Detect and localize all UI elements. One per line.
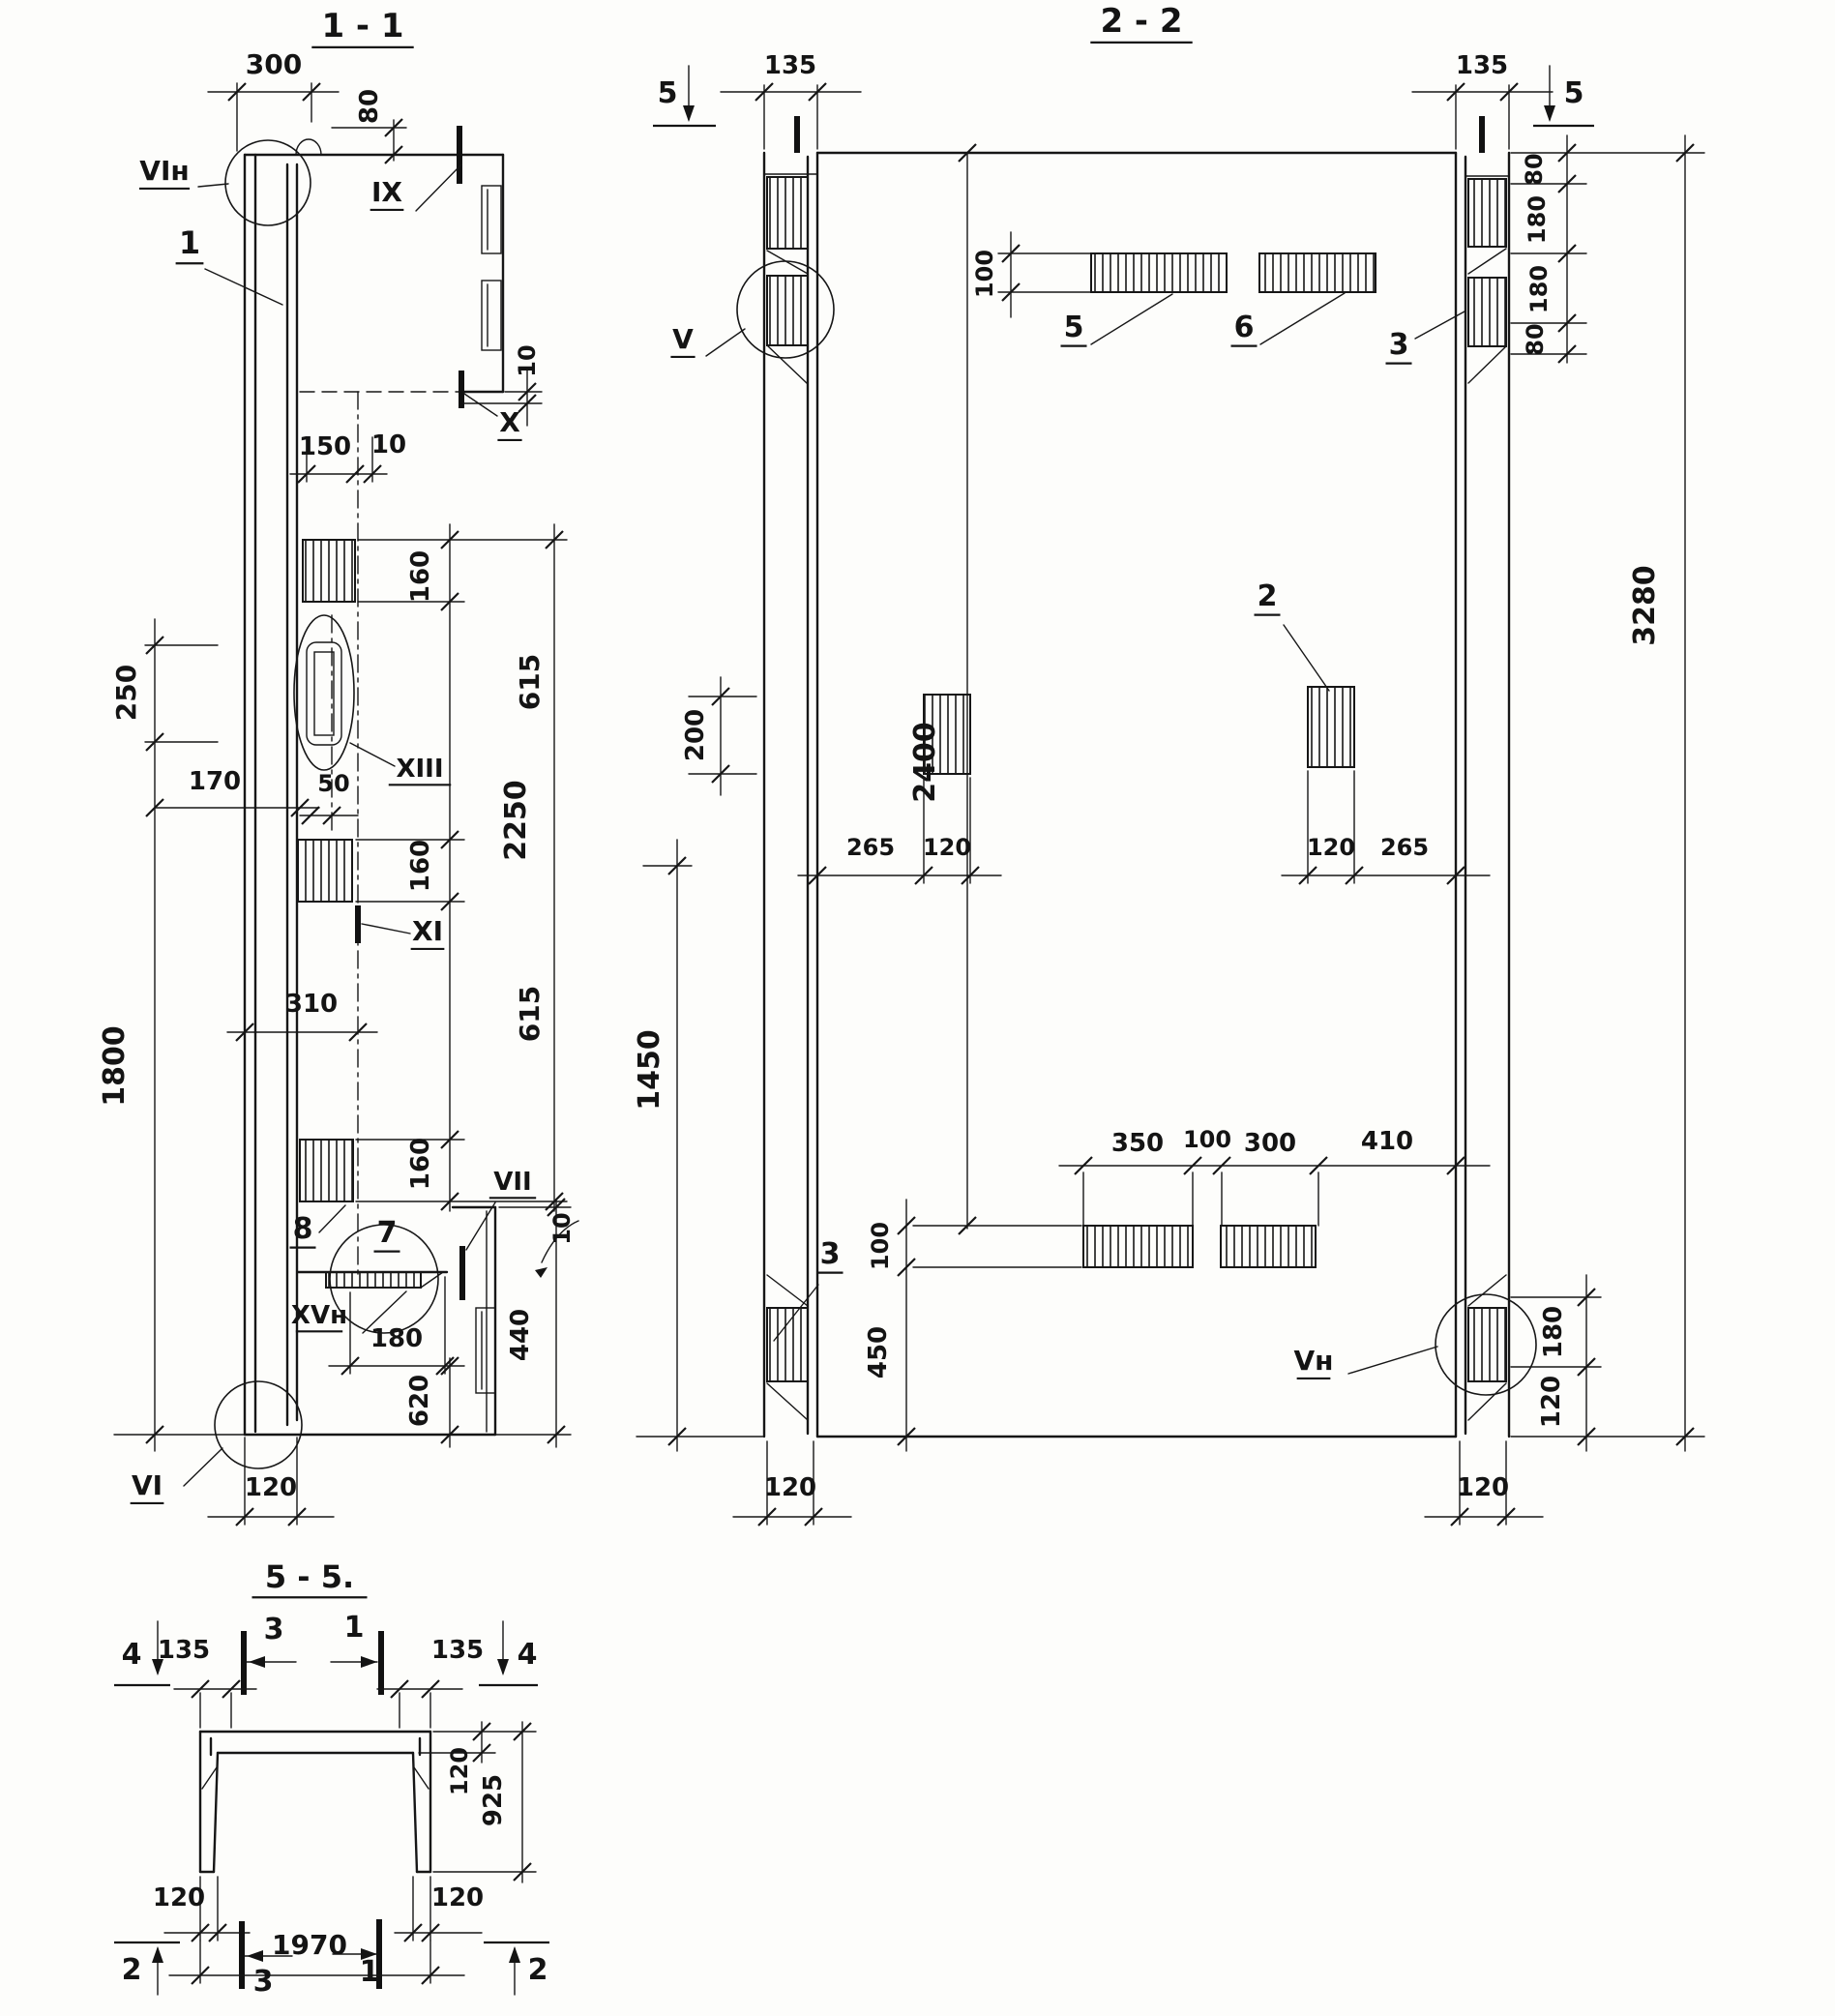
anchor-plate <box>482 281 501 350</box>
dim-180-e: 180 <box>1525 265 1553 313</box>
dim-170: 170 <box>189 767 241 796</box>
dim-120-b: 120 <box>923 834 971 861</box>
title-1-1: 1 - 1 <box>321 7 403 45</box>
dim-3280: 3280 <box>1628 565 1662 646</box>
dim-10-a: 10 <box>371 430 406 460</box>
marker-xiii: XIII <box>396 755 443 784</box>
stirrup-bar <box>1468 278 1506 346</box>
dim-265-b: 265 <box>1380 834 1429 861</box>
label-layer: 1 - 130080VIнIX115010X10160615XIII225025… <box>98 2 1662 1999</box>
dim-2250: 2250 <box>499 780 533 861</box>
slot-opening <box>307 642 341 745</box>
label-7: 7 <box>377 1216 398 1250</box>
dim-265-a: 265 <box>846 834 895 861</box>
dim-180: 180 <box>370 1324 423 1353</box>
label-8: 8 <box>293 1212 313 1246</box>
marker-2-r: 2 <box>528 1953 548 1987</box>
marker-v-n: Vн <box>1293 1345 1333 1377</box>
detail-circle-xiii <box>294 615 354 770</box>
marker-v: V <box>672 323 694 355</box>
stirrup-bar <box>767 276 808 345</box>
dim-250: 250 <box>110 665 142 721</box>
stirrup-bar <box>1468 1308 1506 1381</box>
marker-ix: IX <box>371 176 402 208</box>
dim-615-a: 615 <box>514 654 546 710</box>
rebar-mesh-plate <box>303 540 355 602</box>
rebar-5 <box>1091 253 1227 292</box>
marker-x: X <box>499 406 520 438</box>
marker-vi: VI <box>132 1469 163 1501</box>
stirrup-bar <box>1468 179 1506 247</box>
dim-300: 300 <box>246 48 302 80</box>
title-2-2: 2 - 2 <box>1100 2 1182 41</box>
label-2: 2 <box>1258 579 1278 613</box>
dim-135-c: 135 <box>158 1636 210 1665</box>
dim-120-h: 120 <box>153 1883 205 1912</box>
label-6: 6 <box>1234 311 1255 344</box>
dim-150: 150 <box>299 432 351 461</box>
dim-160-c: 160 <box>406 1138 435 1190</box>
dim-620: 620 <box>405 1375 434 1427</box>
anchor-plate <box>476 1308 495 1393</box>
marker-3-b: 3 <box>253 1965 274 1999</box>
dim-120-c: 120 <box>1307 834 1355 861</box>
mesh-plate-2 <box>1308 687 1354 767</box>
marker-2-l: 2 <box>122 1953 142 1987</box>
dim-100-b: 100 <box>1183 1126 1231 1153</box>
lifting-hook <box>296 139 321 155</box>
dim-10-step: 10 <box>514 344 541 376</box>
marker-vii: VII <box>493 1168 531 1197</box>
dim-180-d: 180 <box>1524 195 1551 244</box>
dim-1800: 1800 <box>98 1025 132 1107</box>
marker-3-t: 3 <box>264 1613 284 1646</box>
rebar-bottom <box>1221 1226 1316 1267</box>
marker-xv-n: XVн <box>291 1301 347 1330</box>
marker-1-t: 1 <box>344 1611 365 1645</box>
stirrup-bar <box>767 1308 808 1381</box>
dim-100-c: 100 <box>867 1222 894 1270</box>
bearing-plate <box>326 1272 421 1288</box>
rebar-mesh-plate <box>300 1140 353 1201</box>
label-5: 5 <box>1064 311 1084 344</box>
dim-410: 410 <box>1361 1127 1413 1156</box>
rebar-mesh-plate <box>298 840 352 902</box>
dim-135-d: 135 <box>431 1636 484 1665</box>
marker-4-l: 4 <box>122 1638 142 1672</box>
dim-160-a: 160 <box>406 550 435 603</box>
dim-615-b: 615 <box>514 986 546 1042</box>
dim-10-b: 10 <box>548 1212 576 1244</box>
dim-440: 440 <box>506 1309 535 1361</box>
marker-1-b: 1 <box>360 1955 380 1989</box>
dim-180-f: 180 <box>1539 1306 1568 1358</box>
marker-4-r: 4 <box>518 1638 538 1672</box>
anchor-plate <box>482 186 501 253</box>
dim-120-i: 120 <box>431 1883 484 1912</box>
dim-135-r: 135 <box>1456 51 1508 80</box>
rebar-bottom <box>1083 1226 1193 1267</box>
drawing-sheet: 1 - 130080VIнIX115010X10160615XIII225025… <box>0 0 1835 2016</box>
dim-1450: 1450 <box>633 1029 666 1111</box>
dim-120-d: 120 <box>1537 1376 1566 1428</box>
detail-circle-vi <box>215 1381 302 1468</box>
dim-135-l: 135 <box>764 51 816 80</box>
marker-vi-n: VIн <box>139 155 189 187</box>
dim-120-a: 120 <box>245 1473 297 1502</box>
dim-2400: 2400 <box>908 722 942 803</box>
title-5-5: 5 - 5. <box>265 1558 354 1595</box>
dim-120-f: 120 <box>1457 1473 1509 1502</box>
marker-xi: XI <box>412 915 443 947</box>
dim-1970: 1970 <box>272 1929 347 1961</box>
dim-310: 310 <box>285 990 338 1019</box>
marker-5-r: 5 <box>1564 76 1584 110</box>
marker-5-l: 5 <box>658 76 678 110</box>
dim-300-b: 300 <box>1244 1129 1296 1158</box>
blueprint-canvas: 1 - 130080VIнIX115010X10160615XIII225025… <box>0 0 1835 2016</box>
dim-120-g: 120 <box>446 1747 473 1795</box>
label-3-b: 3 <box>820 1237 841 1271</box>
stirrup-bar <box>767 177 808 249</box>
dim-120-e: 120 <box>764 1473 816 1502</box>
dim-100-a: 100 <box>971 250 998 298</box>
rebar-6 <box>1259 253 1376 292</box>
label-3-a: 3 <box>1389 328 1409 362</box>
dim-350: 350 <box>1111 1129 1164 1158</box>
dim-50: 50 <box>317 770 349 797</box>
dim-160-b: 160 <box>406 840 435 892</box>
dim-925: 925 <box>479 1774 508 1826</box>
dim-450: 450 <box>864 1326 893 1379</box>
dim-80: 80 <box>355 89 384 124</box>
dim-80-d: 80 <box>1522 323 1549 355</box>
dim-200: 200 <box>681 709 710 761</box>
label-1: 1 <box>179 224 200 261</box>
dim-80-c: 80 <box>1521 153 1548 185</box>
